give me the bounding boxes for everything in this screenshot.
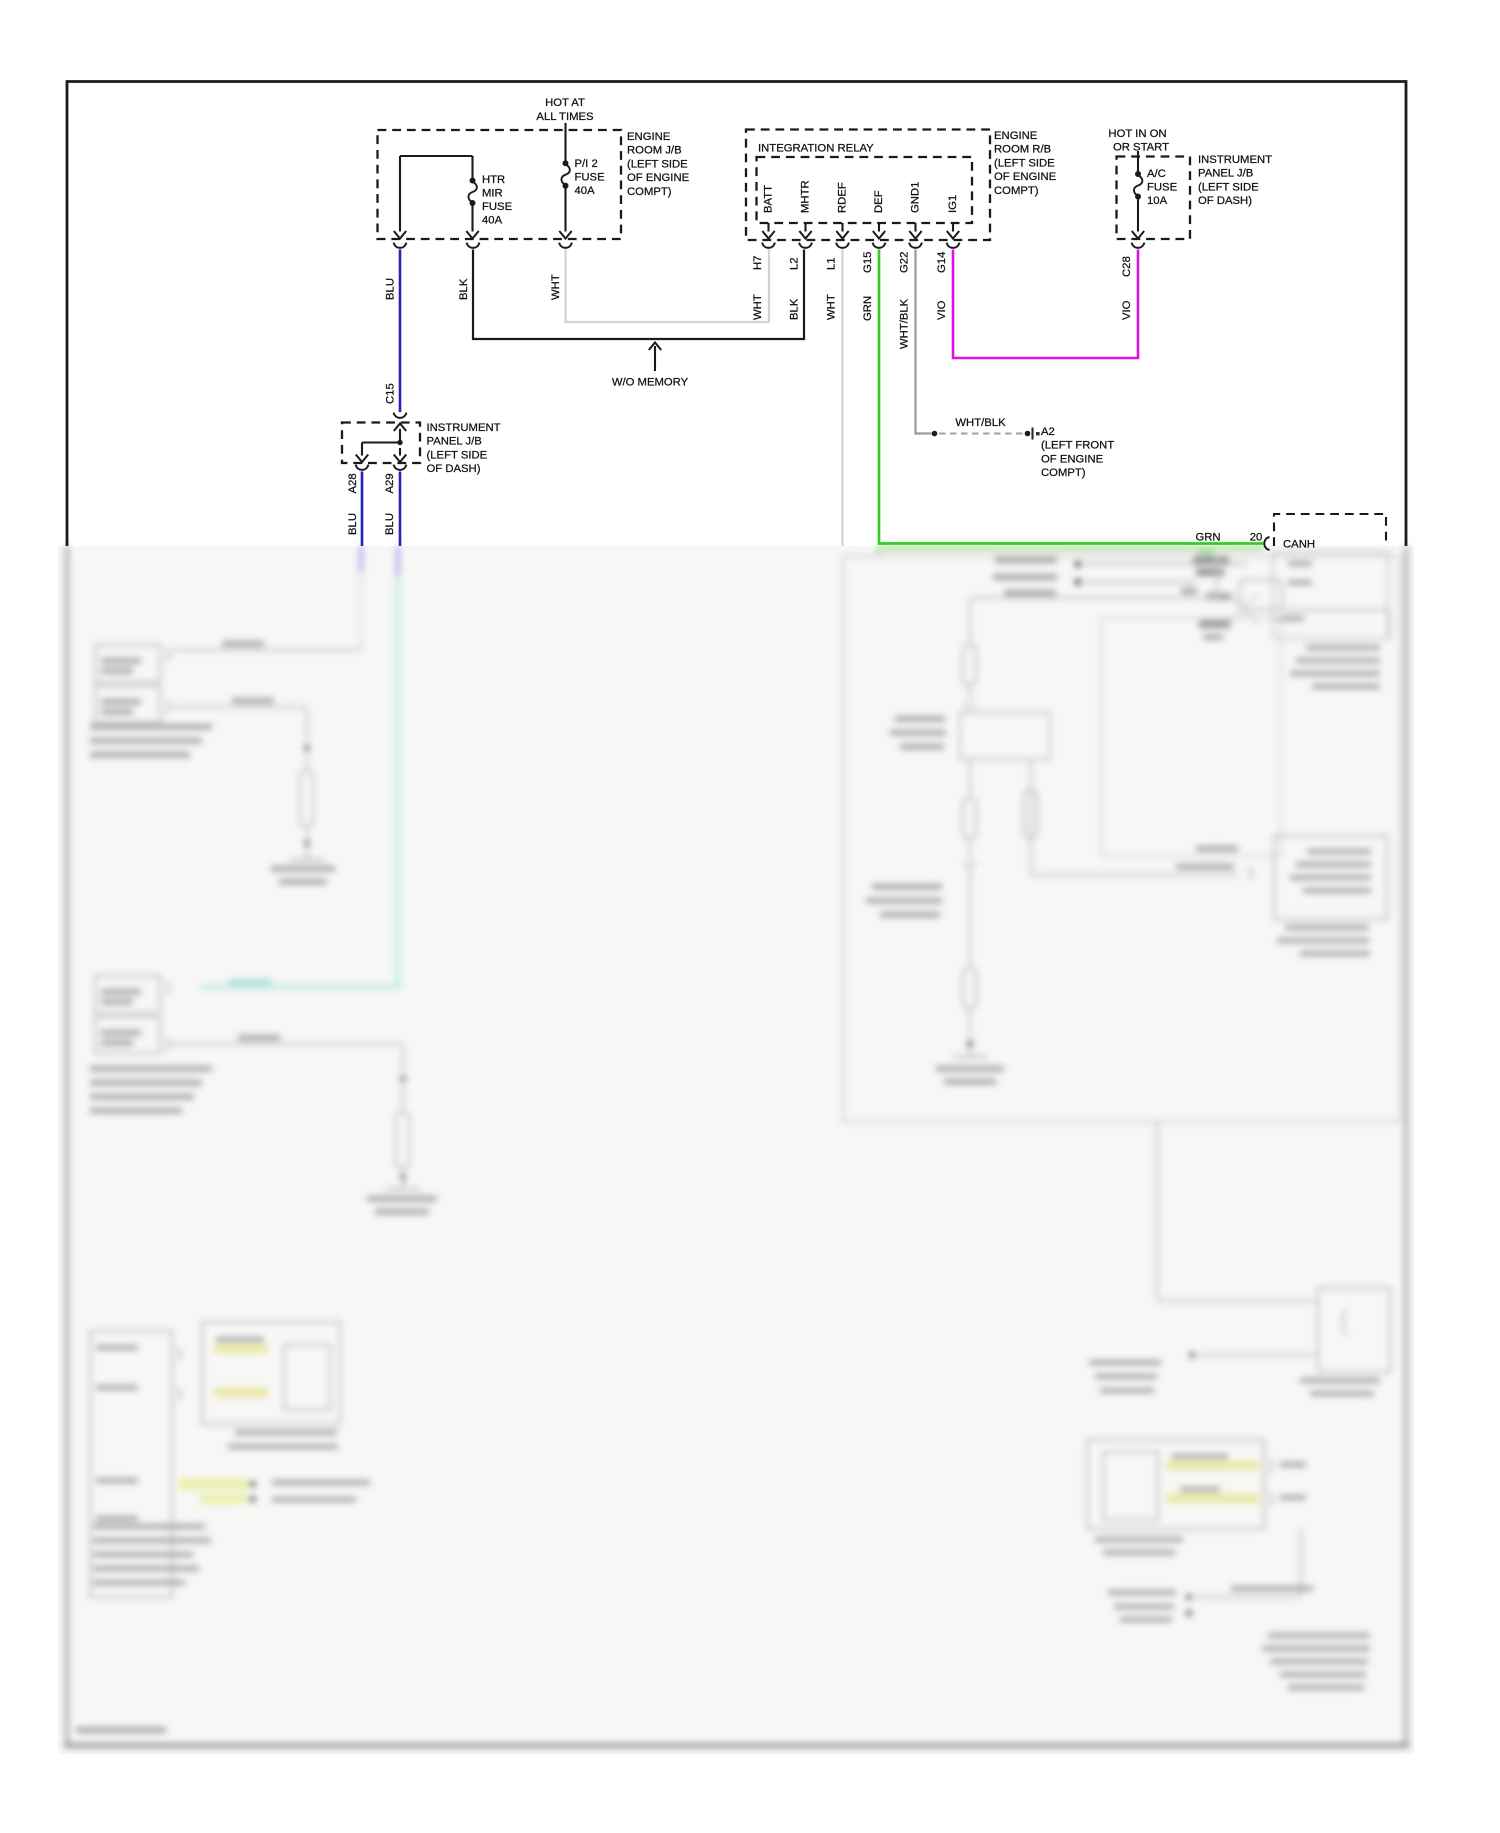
svg-text:BLK: BLK [458, 278, 470, 300]
svg-text:40A: 40A [482, 215, 503, 227]
svg-text:OF DASH): OF DASH) [427, 463, 481, 475]
svg-text:FUSE: FUSE [482, 201, 513, 213]
svg-text:(LEFT SIDE: (LEFT SIDE [994, 157, 1055, 169]
svg-text:INSTRUMENT: INSTRUMENT [427, 422, 501, 434]
svg-text:WHT: WHT [550, 274, 562, 300]
svg-text:FUSE: FUSE [1147, 182, 1178, 194]
svg-text:HTR: HTR [482, 174, 505, 186]
svg-text:COMPT): COMPT) [994, 185, 1039, 197]
svg-text:WHT/BLK: WHT/BLK [955, 417, 1006, 429]
svg-text:MIR: MIR [482, 188, 503, 200]
svg-text:G15: G15 [862, 252, 874, 273]
svg-text:INSTRUMENT: INSTRUMENT [1198, 154, 1272, 166]
svg-text:10A: 10A [1147, 195, 1168, 207]
svg-text:HOT IN ON: HOT IN ON [1108, 128, 1166, 140]
svg-text:RDEF: RDEF [837, 182, 849, 213]
svg-text:OR START: OR START [1113, 142, 1169, 154]
svg-text:A29: A29 [384, 473, 396, 493]
svg-text:ENGINE: ENGINE [627, 131, 671, 143]
svg-text:BLK: BLK [789, 298, 801, 320]
svg-text:MHTR: MHTR [800, 180, 812, 213]
svg-text:A/C: A/C [1147, 168, 1166, 180]
svg-text:(LEFT SIDE: (LEFT SIDE [627, 158, 688, 170]
svg-text:HOT AT: HOT AT [545, 97, 585, 109]
svg-text:OF ENGINE: OF ENGINE [994, 171, 1057, 183]
svg-text:ROOM R/B: ROOM R/B [994, 144, 1051, 156]
svg-text:(LEFT SIDE: (LEFT SIDE [427, 449, 488, 461]
svg-text:W/O MEMORY: W/O MEMORY [612, 377, 689, 389]
svg-text:BLU: BLU [385, 278, 397, 300]
svg-text:COMPT): COMPT) [1041, 467, 1086, 479]
svg-text:CANH: CANH [1283, 539, 1315, 551]
svg-text:(LEFT SIDE: (LEFT SIDE [1198, 181, 1259, 193]
svg-text:C15: C15 [385, 383, 397, 404]
svg-text:DEF: DEF [873, 190, 885, 213]
svg-text:L1: L1 [826, 257, 838, 270]
svg-text:G14: G14 [936, 252, 948, 273]
svg-text:WHT: WHT [752, 294, 764, 320]
svg-text:OF DASH): OF DASH) [1198, 195, 1252, 207]
svg-text:C28: C28 [1121, 256, 1133, 277]
svg-text:A28: A28 [347, 473, 359, 493]
svg-text:IG1: IG1 [947, 195, 959, 213]
svg-text:INTEGRATION RELAY: INTEGRATION RELAY [758, 143, 874, 155]
svg-text:20: 20 [1250, 532, 1263, 544]
svg-text:(LEFT FRONT: (LEFT FRONT [1041, 440, 1114, 452]
svg-text:ENGINE: ENGINE [994, 130, 1038, 142]
svg-text:BLU: BLU [347, 513, 359, 535]
svg-text:P/I 2: P/I 2 [575, 158, 598, 170]
svg-text:A2: A2 [1041, 426, 1055, 438]
svg-text:PANEL J/B: PANEL J/B [1198, 168, 1253, 180]
svg-text:WHT: WHT [826, 294, 838, 320]
svg-text:WHT/BLK: WHT/BLK [899, 298, 911, 349]
svg-text:PANEL J/B: PANEL J/B [427, 436, 482, 448]
svg-text:GND1: GND1 [910, 182, 922, 213]
svg-text:ALL TIMES: ALL TIMES [536, 111, 594, 123]
svg-text:FUSE: FUSE [575, 172, 606, 184]
svg-text:40A: 40A [575, 185, 596, 197]
svg-text:BATT: BATT [763, 185, 775, 213]
svg-text:H7: H7 [752, 256, 764, 270]
svg-text:G22: G22 [899, 252, 911, 273]
svg-text:OF ENGINE: OF ENGINE [627, 172, 690, 184]
svg-text:L2: L2 [789, 257, 801, 270]
svg-text:GRN: GRN [1195, 532, 1220, 544]
svg-text:COMPT): COMPT) [627, 186, 672, 198]
svg-text:VIO: VIO [936, 300, 948, 320]
svg-text:OF ENGINE: OF ENGINE [1041, 453, 1104, 465]
svg-text:GRN: GRN [862, 296, 874, 321]
svg-text:BLU: BLU [384, 513, 396, 535]
svg-text:ROOM J/B: ROOM J/B [627, 145, 682, 157]
svg-text:VIO: VIO [1121, 300, 1133, 320]
